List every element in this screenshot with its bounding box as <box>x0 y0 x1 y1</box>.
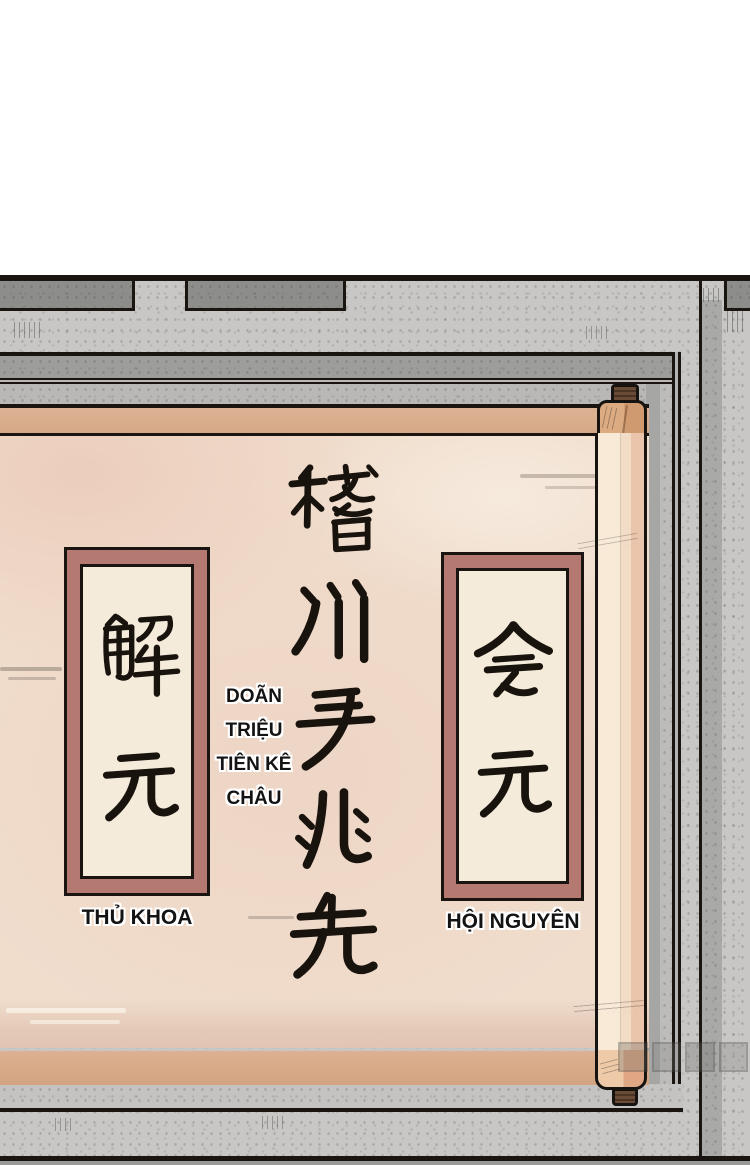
brush-stroke-icon <box>95 739 183 829</box>
watermark-block <box>719 1042 749 1072</box>
roller-cap-facet <box>622 405 628 433</box>
title-translation: DOÃN TRIỆU TIÊN KÊ CHÂU <box>196 680 312 816</box>
hanging-scroll: 解 元 <box>0 404 649 1084</box>
roller-bottom-knob <box>612 1088 638 1106</box>
page-top-margin <box>0 0 750 275</box>
calligraphy-char-text: 解 <box>93 701 94 702</box>
scroll-bottom-band <box>0 1051 649 1085</box>
ledge-band <box>0 1084 683 1108</box>
niche-frame-line-b <box>678 352 681 1112</box>
scroll-roller <box>593 384 648 1108</box>
brush-stroke-icon <box>93 609 183 701</box>
right-plaque-inner: 会 元 <box>456 568 569 884</box>
paper-worn-streak <box>0 667 62 671</box>
wall-column-dark-stripe <box>702 300 722 1160</box>
beam-lower-band <box>0 384 649 404</box>
calligraphy-char-text: 元 <box>470 825 471 826</box>
brush-stroke-icon <box>470 737 556 825</box>
translation-line: TRIỆU <box>196 714 312 748</box>
watermark-logo <box>618 1042 748 1072</box>
stone-chisel-marks <box>55 1118 75 1131</box>
comic-page: 解 元 <box>0 0 750 1165</box>
watermark-block <box>685 1042 715 1072</box>
ledge-line <box>0 1108 683 1112</box>
paper-worn-streak <box>30 1020 120 1024</box>
right-plaque-caption: HỘI NGUYÊN <box>433 910 593 934</box>
left-plaque: 解 元 <box>64 547 210 896</box>
stone-chisel-marks <box>262 1116 284 1129</box>
calligraphy-char-xian: 先 <box>286 888 382 986</box>
calligraphy-char-text: 会 <box>470 707 471 708</box>
translation-line: TIÊN KÊ <box>196 748 312 782</box>
translation-line: DOÃN <box>196 680 312 714</box>
calligraphy-char-hui: 会 <box>470 619 556 707</box>
calligraphy-char-ji: 稽 <box>287 459 383 557</box>
brush-stroke-icon <box>470 619 556 707</box>
calligraphy-char-jie: 解 <box>93 609 183 701</box>
stone-block <box>724 281 750 311</box>
beam-dark-band <box>0 356 672 378</box>
calligraphy-char-yuan: 元 <box>95 739 183 829</box>
stone-block <box>185 281 346 311</box>
calligraphy-char-text: 元 <box>95 829 96 830</box>
translation-line: CHÂU <box>196 782 312 816</box>
floor-dark-strip <box>0 1161 750 1165</box>
calligraphy-char-zhou: 州 <box>288 570 382 667</box>
stone-chisel-marks <box>703 288 721 302</box>
roller-body <box>595 433 647 1053</box>
roller-cap-hatch <box>602 406 618 430</box>
brush-stroke-icon <box>286 888 382 986</box>
left-plaque-caption: THỦ KHOA <box>64 906 210 930</box>
brush-stroke-icon <box>287 459 383 557</box>
niche-light-band <box>660 384 672 1108</box>
paper-worn-streak <box>6 1008 126 1013</box>
brush-stroke-icon <box>288 570 382 667</box>
right-plaque: 会 元 <box>441 552 584 901</box>
roller-cap <box>597 400 647 436</box>
paper-worn-streak <box>545 486 597 489</box>
stone-block <box>0 281 135 311</box>
left-plaque-inner: 解 元 <box>80 564 194 879</box>
paper-worn-streak <box>520 474 598 478</box>
watermark-block <box>652 1042 682 1072</box>
stone-chisel-marks <box>727 310 743 332</box>
scroll-top-band <box>0 408 649 436</box>
calligraphy-char-yuan: 元 <box>470 737 556 825</box>
watermark-block <box>618 1042 648 1072</box>
stone-chisel-marks <box>586 326 608 339</box>
roller-body-facet <box>620 433 621 1053</box>
paper-worn-streak <box>8 677 56 680</box>
stone-chisel-marks <box>14 322 40 338</box>
